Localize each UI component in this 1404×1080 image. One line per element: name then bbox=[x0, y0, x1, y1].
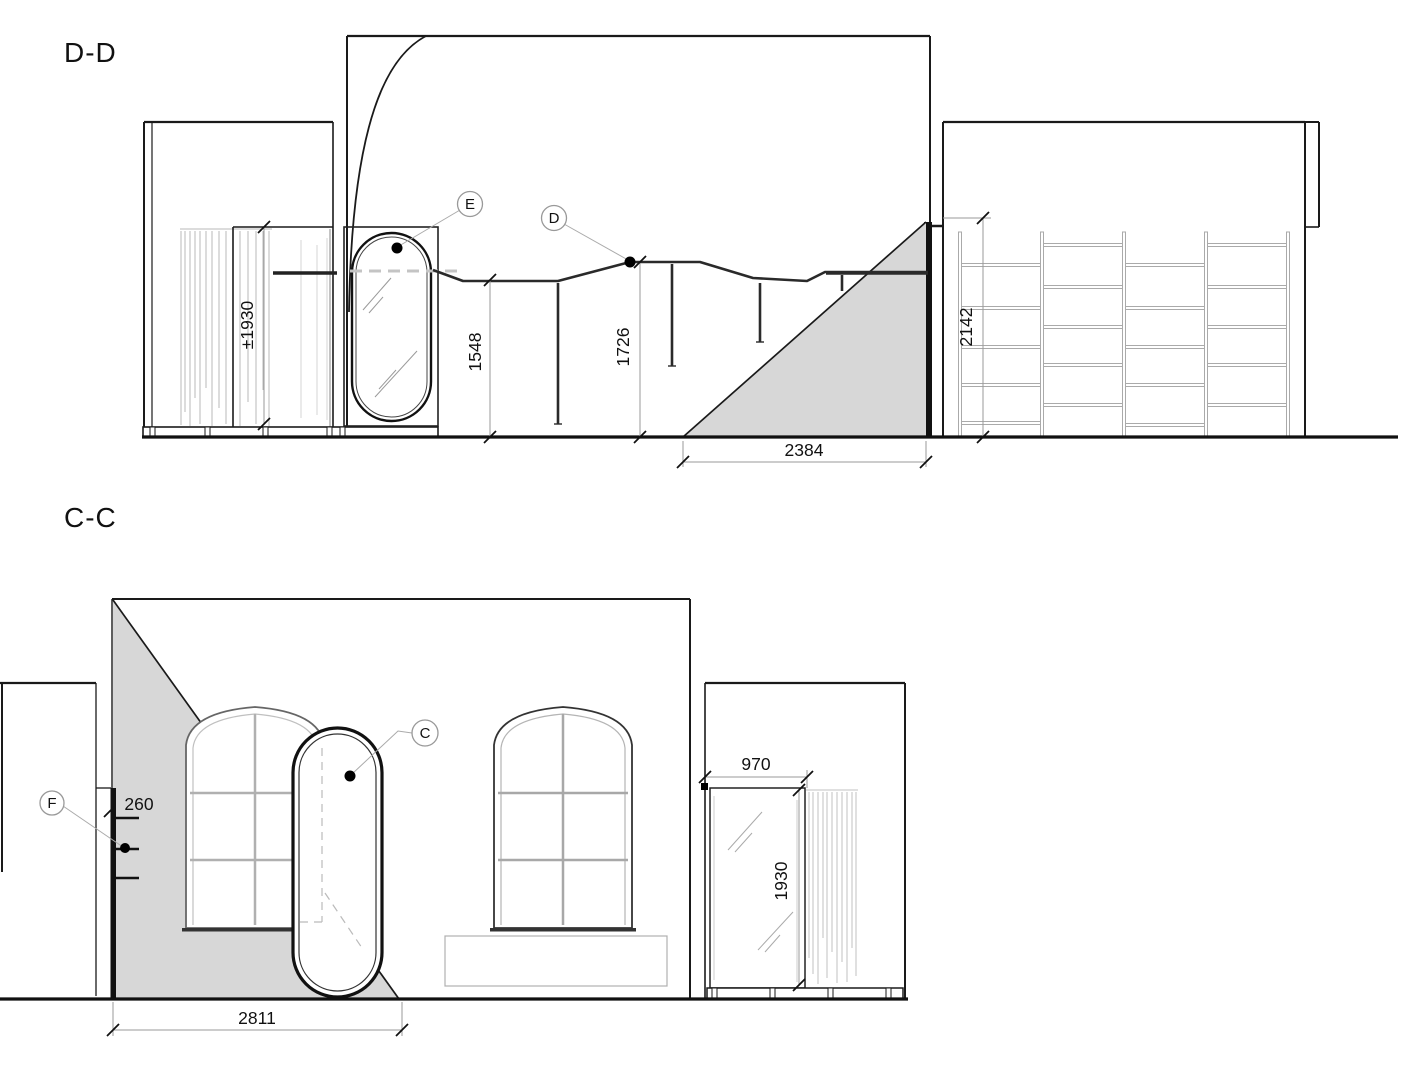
dim-label-2811: 2811 bbox=[238, 1008, 276, 1028]
cc-left-partial-room bbox=[0, 683, 111, 996]
callout-d-leader bbox=[564, 224, 628, 260]
cc-bathtub bbox=[293, 728, 382, 997]
drawing-canvas: D-D bbox=[0, 0, 1404, 1080]
section-cc-title: C-C bbox=[64, 502, 117, 533]
dim-label-2384: 2384 bbox=[785, 440, 824, 460]
cc-wall-anchor-mark bbox=[701, 783, 708, 790]
cc-bench bbox=[445, 936, 667, 986]
callout-c-dot bbox=[345, 771, 356, 782]
dd-bathtub bbox=[344, 227, 462, 426]
dd-shelving-room bbox=[943, 122, 1319, 437]
dim-label-1930: 1930 bbox=[771, 861, 791, 900]
callout-d-label: D bbox=[549, 210, 560, 227]
cc-right-window-sill bbox=[490, 928, 636, 932]
callout-e-dot bbox=[392, 243, 403, 254]
dim-label-260: 260 bbox=[124, 794, 153, 814]
dim-label-1726: 1726 bbox=[613, 328, 633, 367]
callout-e-label: E bbox=[465, 196, 475, 213]
dd-shelving-unit bbox=[959, 232, 1290, 436]
dim-label-shower-height: ±1930 bbox=[237, 300, 257, 349]
callout-d-dot bbox=[625, 257, 636, 268]
section-dd: D-D bbox=[64, 36, 1398, 468]
cc-cut-wall-section bbox=[111, 788, 117, 999]
dim-label-2142: 2142 bbox=[956, 308, 976, 347]
dim-label-1548: 1548 bbox=[465, 333, 485, 372]
dd-shower-room bbox=[144, 122, 333, 437]
cc-shower-curtain bbox=[806, 790, 858, 984]
dd-section-triangle bbox=[683, 222, 926, 437]
architectural-drawing-page: D-D bbox=[0, 0, 1404, 1080]
callout-f-dot bbox=[120, 843, 130, 853]
cc-right-window bbox=[490, 707, 636, 932]
callout-f-label: F bbox=[47, 795, 56, 812]
dim-label-970: 970 bbox=[741, 754, 770, 774]
callout-e-leader bbox=[399, 210, 460, 246]
callout-c-label: C bbox=[420, 725, 431, 742]
section-dd-title: D-D bbox=[64, 37, 117, 68]
cc-shower-plinth bbox=[707, 988, 903, 999]
section-cc: C-C bbox=[0, 502, 908, 1036]
dd-shower-curtain bbox=[180, 229, 272, 426]
